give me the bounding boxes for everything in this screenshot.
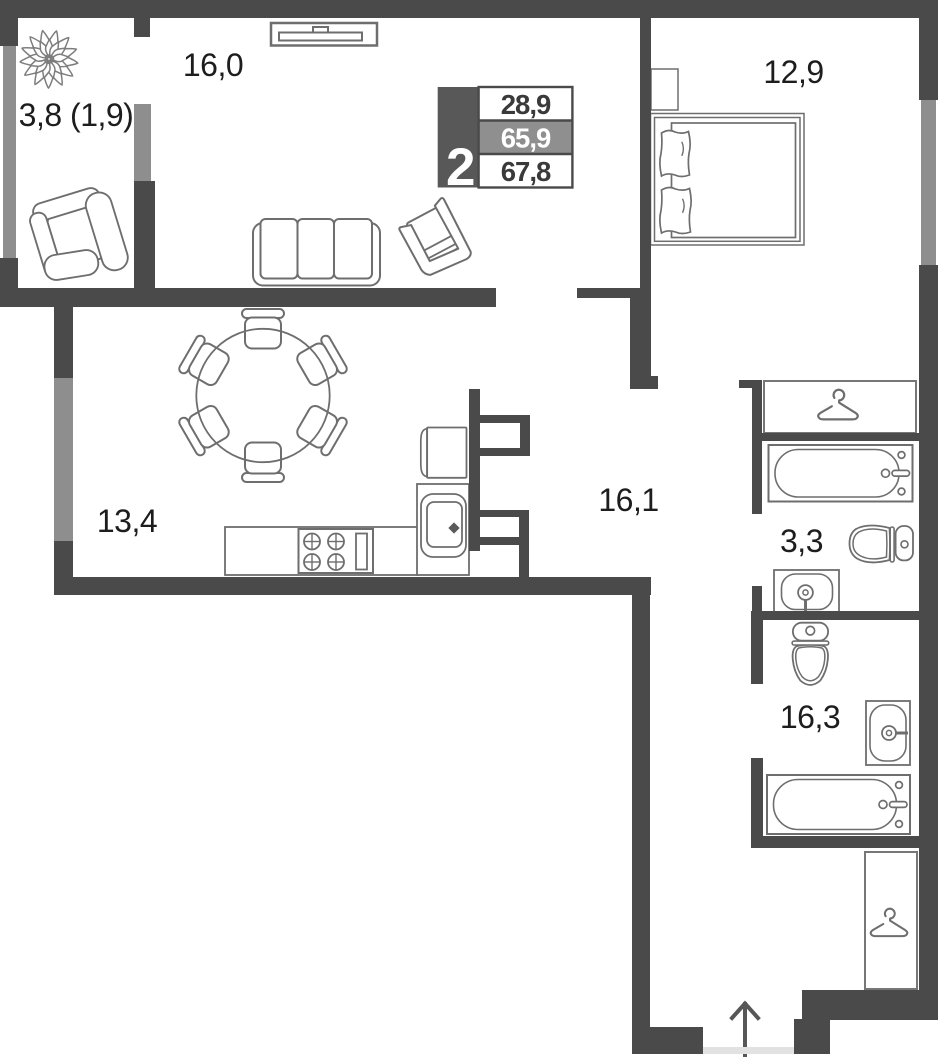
svg-text:12,9: 12,9 [763, 54, 823, 90]
svg-text:16,1: 16,1 [598, 482, 658, 518]
svg-text:67,8: 67,8 [501, 156, 551, 187]
svg-text:16,3: 16,3 [780, 699, 840, 735]
svg-text:2: 2 [446, 138, 475, 197]
svg-text:13,4: 13,4 [97, 503, 157, 539]
svg-text:65,9: 65,9 [501, 123, 551, 154]
svg-text:16,0: 16,0 [183, 47, 243, 83]
svg-text:28,9: 28,9 [501, 89, 551, 120]
svg-text:3,8 (1,9): 3,8 (1,9) [19, 97, 134, 133]
svg-text:3,3: 3,3 [780, 523, 823, 559]
